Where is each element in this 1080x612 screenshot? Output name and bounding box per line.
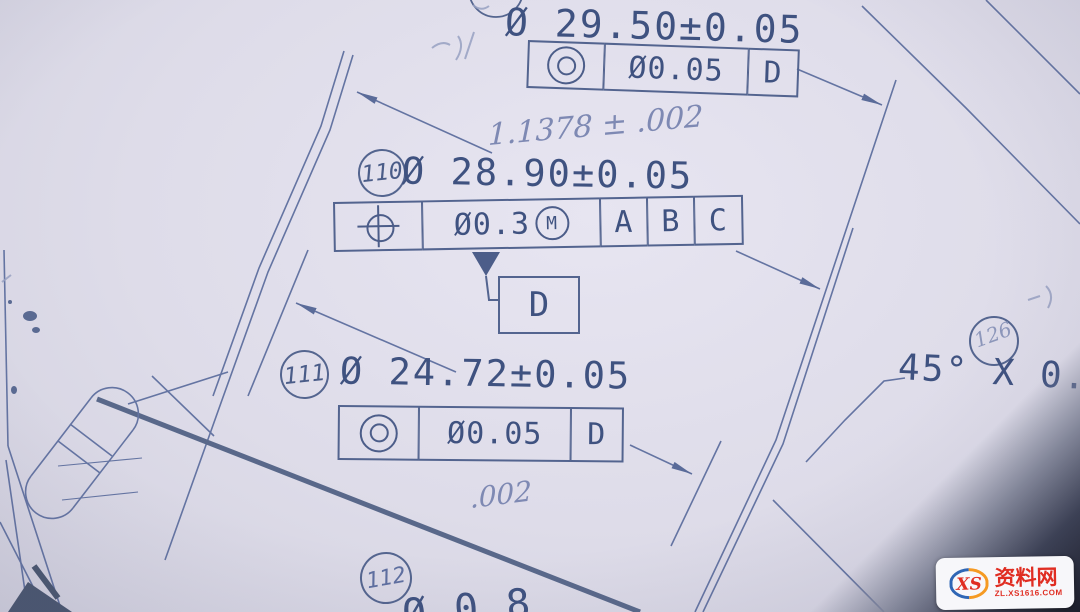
datum-triangle-icon [472,252,500,300]
fcf-symbol-cell [333,200,423,252]
fcf-datum-cell: D [747,48,800,98]
dimension-lines [165,0,1080,612]
fcf-datum-b-cell: B [647,196,695,247]
ink-blotches [8,300,40,394]
fcf-tolerance-cell: Ø0.3 M [422,197,601,250]
mmc-icon: M [535,206,570,241]
fcf-datum-a-cell: A [600,197,648,248]
position-icon [357,205,400,248]
fcf-symbol-cell [338,405,419,461]
watermark-site-name: 资料网 [994,567,1062,589]
fcf-concentricity-111: Ø0.05 D [338,405,624,462]
balloon-126-number: 126 [971,317,1015,353]
fcf-datum-c-cell: C [694,195,744,246]
watermark-text-block: 资料网 ZL.XS1616.COM [994,567,1062,599]
concentricity-icon [546,46,585,85]
fcf-symbol-cell [526,40,605,91]
concentricity-icon [360,414,398,452]
dimension-28-90: Ø 28.90±0.05 [402,149,694,197]
engineering-drawing-photo: Ø 29.50±0.05 Ø0.05 D 1.1378 ± .002 110 Ø… [0,0,1080,612]
fcf-tolerance-cell: Ø0.05 [603,43,749,96]
watermark-badge: XS 资料网 ZL.XS1616.COM [936,556,1075,610]
part-geometry [0,250,228,612]
datum-flag-d: D [498,276,580,334]
fcf-concentricity-top: Ø0.05 D [526,40,800,97]
fcf-tolerance-value: Ø0.3 [453,206,530,242]
watermark-logo-icon: XS [947,567,990,600]
fcf-position-110: Ø0.3 M A B C [333,195,744,252]
fcf-tolerance-cell: Ø0.05 [419,406,571,462]
dimension-24-72: Ø 24.72±0.05 [340,349,632,397]
watermark-logo-text: XS [955,574,982,594]
fcf-datum-cell: D [571,407,624,462]
watermark-site-url: ZL.XS1616.COM [995,587,1063,598]
